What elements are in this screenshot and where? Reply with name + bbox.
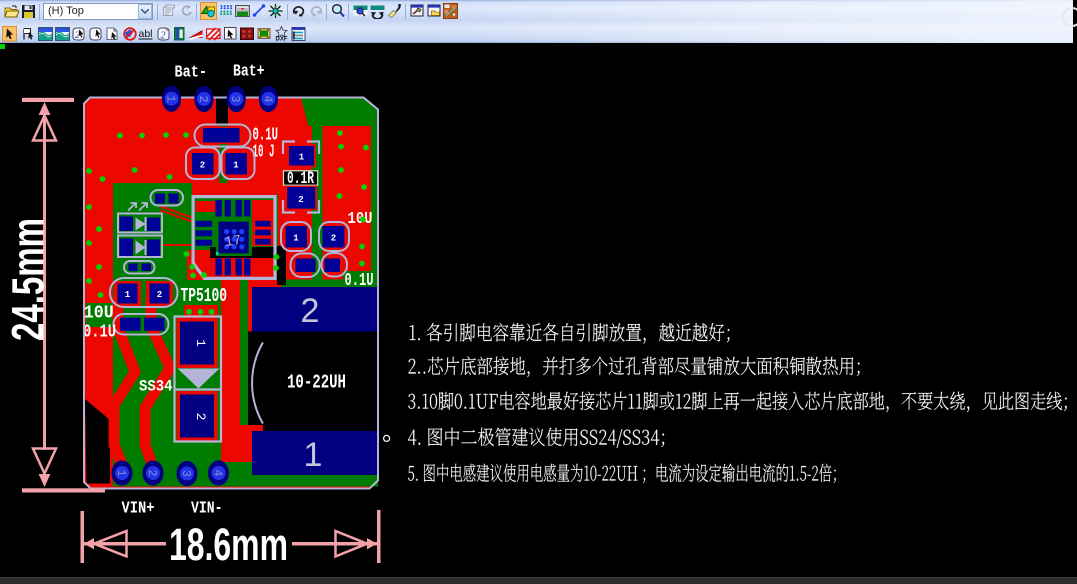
svg-text:1: 1	[304, 436, 323, 474]
svg-text:VIN-: VIN-	[191, 499, 223, 518]
svg-text:1: 1	[125, 290, 131, 300]
svg-text:2: 2	[331, 234, 336, 244]
svg-text:3: 3	[228, 96, 241, 103]
svg-text:1: 1	[114, 470, 127, 477]
svg-text:TP5100: TP5100	[181, 285, 228, 307]
svg-text:Bat+: Bat+	[233, 63, 265, 82]
svg-text:10 J: 10 J	[253, 143, 275, 163]
svg-text:17: 17	[224, 233, 243, 251]
svg-text:2: 2	[298, 195, 303, 205]
svg-text:4: 4	[211, 470, 224, 477]
svg-text:abl: abl	[139, 28, 153, 40]
svg-text:1: 1	[293, 234, 299, 244]
svg-text:1: 1	[299, 153, 305, 163]
svg-text:0.1U: 0.1U	[83, 323, 116, 343]
svg-text:2: 2	[193, 413, 208, 421]
svg-text:2: 2	[196, 95, 209, 102]
svg-text:SS34: SS34	[139, 378, 173, 396]
svg-text:18.6mm: 18.6mm	[169, 519, 288, 570]
svg-text:4: 4	[260, 95, 273, 102]
svg-text:2: 2	[157, 290, 162, 300]
svg-text:10U: 10U	[348, 210, 373, 229]
svg-text:2: 2	[160, 31, 165, 42]
svg-text:10U: 10U	[84, 304, 114, 324]
svg-text:1: 1	[164, 95, 177, 102]
svg-text:DXF: DXF	[276, 37, 288, 43]
svg-text:10-22UH: 10-22UH	[287, 372, 346, 394]
svg-text:24.5mm: 24.5mm	[3, 218, 54, 341]
svg-text:2: 2	[200, 161, 205, 171]
svg-text:2: 2	[145, 470, 158, 477]
svg-text:VIN+: VIN+	[122, 499, 155, 518]
svg-text:Bat-: Bat-	[175, 64, 208, 83]
svg-text:2: 2	[301, 292, 320, 330]
svg-text:1: 1	[233, 161, 239, 171]
svg-text:3: 3	[179, 470, 192, 477]
svg-text:1: 1	[193, 339, 208, 347]
